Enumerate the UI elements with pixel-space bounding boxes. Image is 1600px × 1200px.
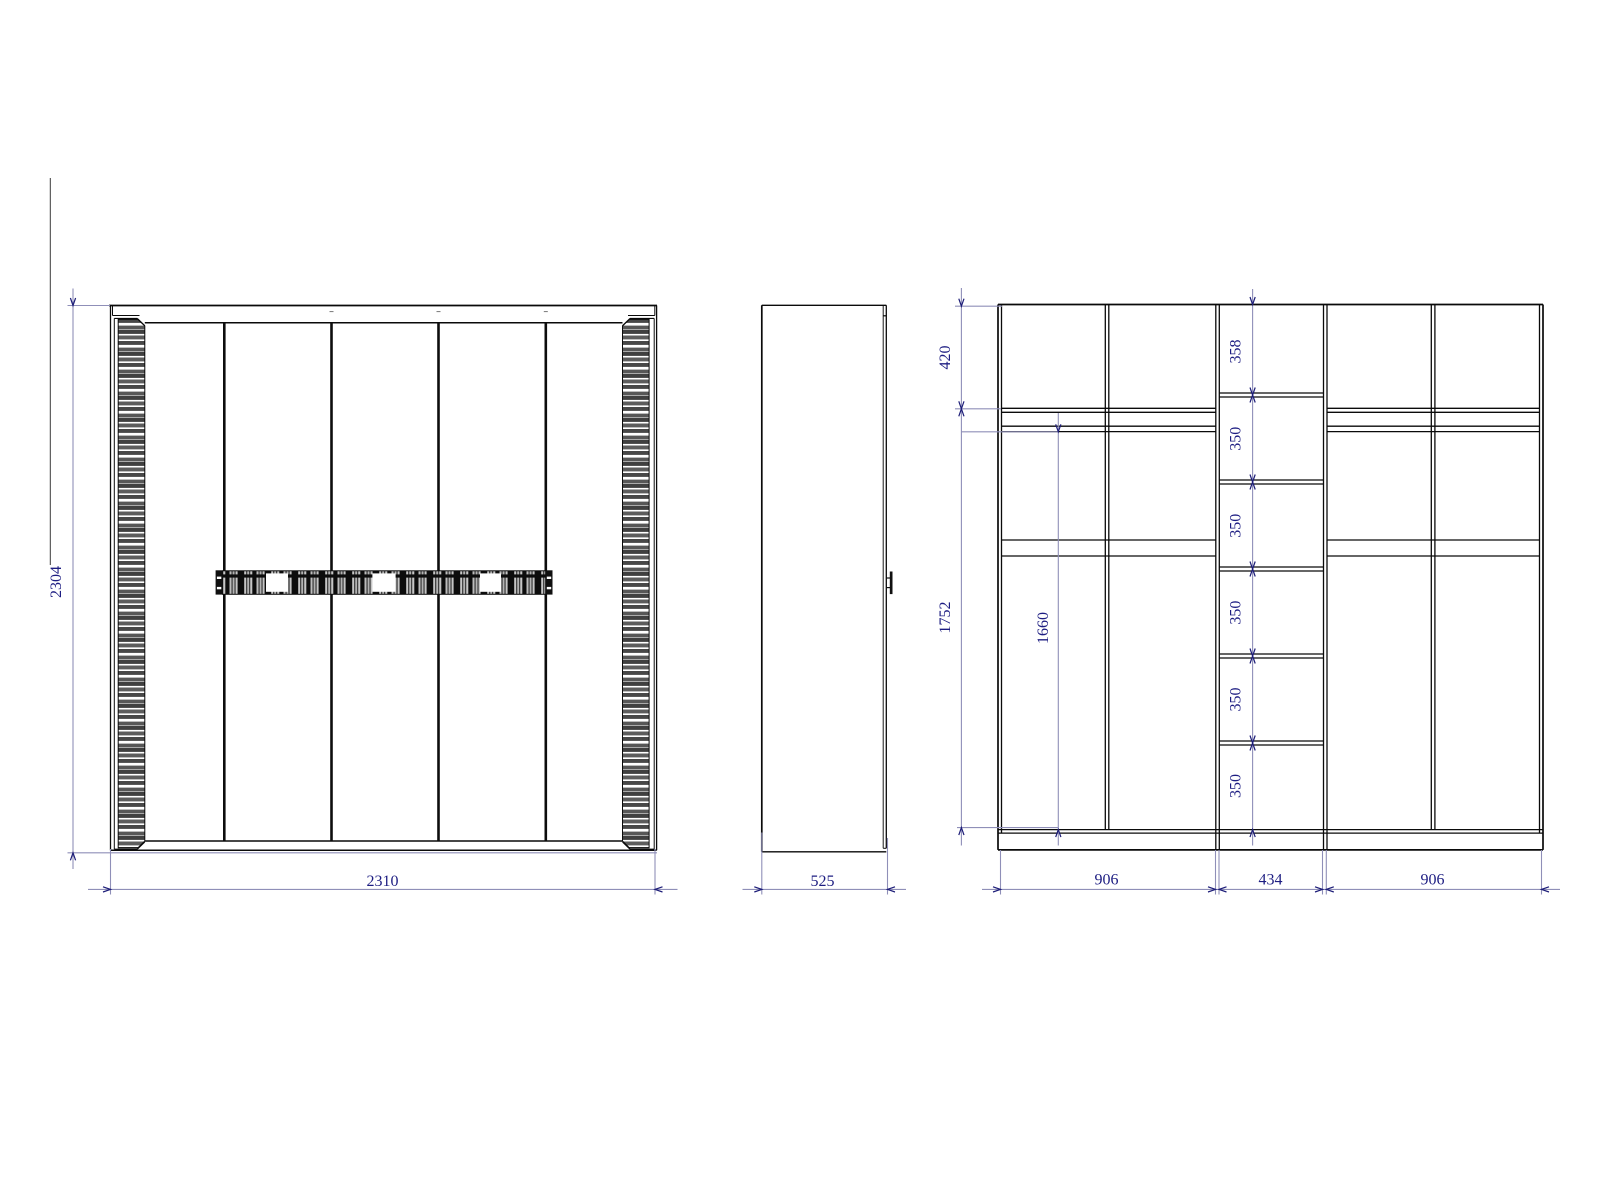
- svg-text:358: 358: [1228, 340, 1245, 364]
- svg-text:2304: 2304: [48, 566, 65, 598]
- svg-text:906: 906: [1095, 872, 1119, 889]
- svg-text:350: 350: [1228, 427, 1245, 451]
- svg-text:434: 434: [1259, 872, 1283, 889]
- svg-text:2310: 2310: [367, 873, 399, 890]
- svg-text:1752: 1752: [937, 602, 954, 634]
- svg-text:350: 350: [1228, 774, 1245, 798]
- svg-text:420: 420: [937, 346, 954, 370]
- svg-text:1660: 1660: [1035, 612, 1052, 644]
- svg-text:525: 525: [811, 873, 835, 890]
- svg-text:350: 350: [1228, 514, 1245, 538]
- svg-text:350: 350: [1228, 688, 1245, 712]
- svg-text:350: 350: [1228, 601, 1245, 625]
- svg-text:906: 906: [1421, 872, 1445, 889]
